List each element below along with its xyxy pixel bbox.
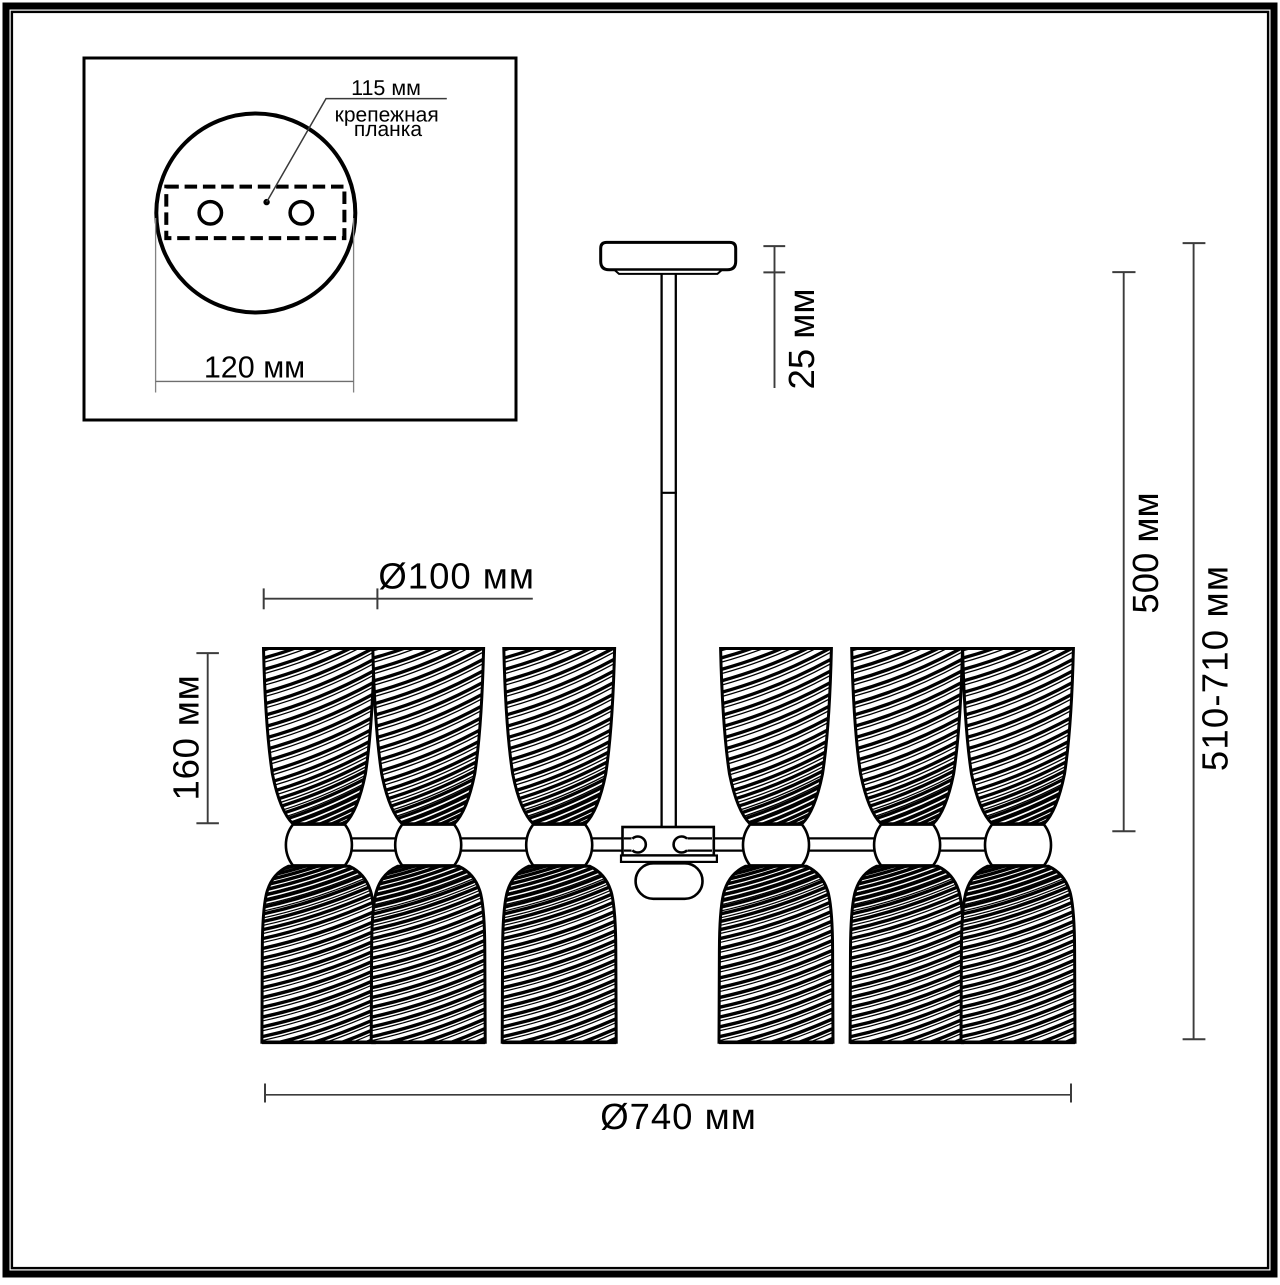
svg-text:Ø740 мм: Ø740 мм [600,1096,757,1137]
svg-text:планка: планка [354,118,423,141]
svg-text:120 мм: 120 мм [204,351,305,385]
svg-text:25 мм: 25 мм [781,289,822,390]
svg-text:160 мм: 160 мм [166,674,207,800]
svg-text:510-710 мм: 510-710 мм [1195,565,1236,771]
svg-text:115 мм: 115 мм [351,76,421,100]
svg-text:Ø100 мм: Ø100 мм [378,555,535,596]
svg-text:500 мм: 500 мм [1125,492,1166,613]
